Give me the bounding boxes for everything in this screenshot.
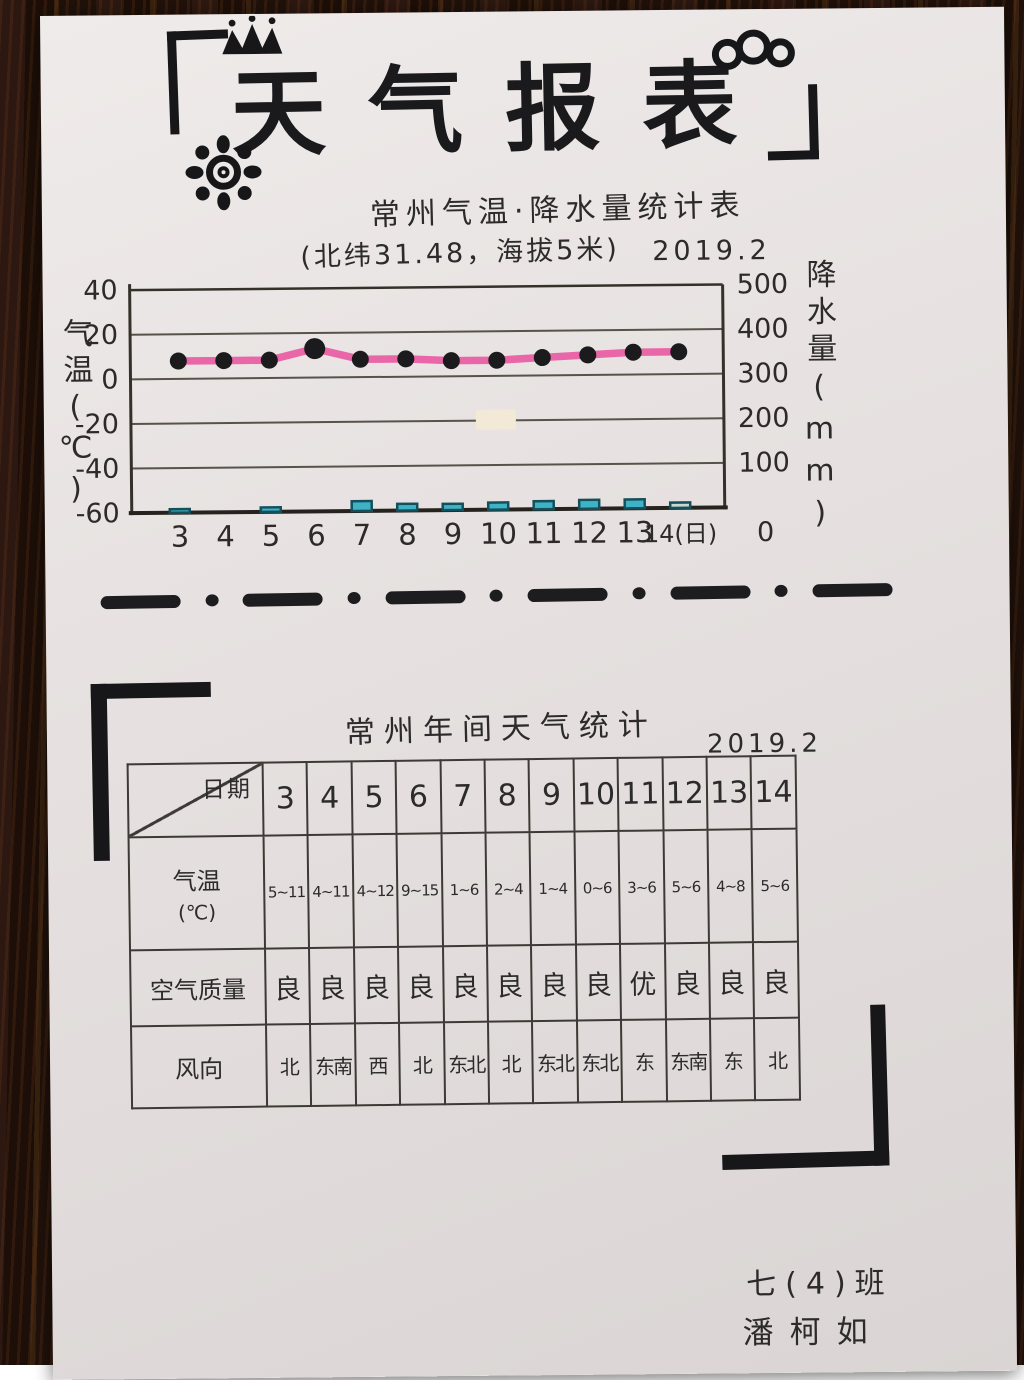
day-header-cell: 12 [662, 757, 707, 831]
row-label: 风向 [131, 1025, 267, 1109]
day-header-cell: 4 [307, 761, 352, 835]
cloud-doodle-icon [706, 23, 806, 74]
row-label-unit: (℃) [130, 900, 263, 926]
day-header-cell: 6 [396, 760, 441, 834]
precipitation-bar [534, 501, 554, 509]
correction-patch [476, 409, 516, 429]
temperature-point [670, 343, 687, 360]
x-tick-label: 11 [525, 516, 562, 550]
air-quality-cell: 良 [265, 948, 310, 1025]
weather-table: 日期34567891011121314气温(℃)5~114~114~129~15… [127, 755, 801, 1110]
precipitation-bar [397, 504, 417, 511]
page-title: 天气报表 [230, 29, 780, 176]
day-header-cell: 14 [751, 756, 796, 830]
left-tick-label: -20 [75, 409, 119, 440]
row-label-text: 风向 [132, 1048, 265, 1085]
temperature-cell: 3~6 [619, 830, 665, 944]
row-label: 气温(℃) [129, 836, 265, 951]
temperature-point [579, 346, 596, 363]
temperature-cell: 5~11 [264, 835, 310, 949]
air-quality-cell: 良 [309, 947, 354, 1024]
divider-dash [243, 592, 323, 606]
temperature-point [170, 352, 187, 369]
wind-direction-cell: 北 [399, 1022, 444, 1105]
day-header-cell: 5 [351, 761, 396, 835]
x-tick-label: 12 [571, 516, 608, 550]
left-axis [130, 284, 132, 515]
x-tick-label: 7 [353, 518, 372, 552]
gridline [131, 418, 724, 424]
desk-background: 天气报表 常州气温·降水量统计表 (北纬31.48，海拔5米) 2019.2 气… [0, 0, 1024, 1365]
sun-doodle-icon [179, 130, 268, 215]
temperature-point [488, 352, 505, 369]
x-tick-label: 9 [444, 517, 463, 551]
table-close-bracket-icon [718, 1004, 889, 1169]
day-header-cell: 10 [573, 758, 618, 832]
air-quality-cell: 良 [487, 945, 532, 1022]
gridline [131, 463, 724, 469]
temperature-cell: 5~6 [752, 829, 798, 943]
divider-dash [670, 585, 750, 599]
air-quality-cell: 良 [354, 947, 399, 1024]
left-tick-label: 0 [101, 364, 118, 395]
wind-direction-cell: 北 [488, 1021, 533, 1104]
temperature-point [443, 352, 460, 369]
temperature-cell: 5~6 [663, 830, 709, 944]
x-tick-label: 10 [480, 516, 517, 550]
x-tick-label: 4 [216, 519, 235, 553]
wind-direction-cell: 东南 [310, 1023, 355, 1106]
day-header-cell: 7 [440, 760, 485, 834]
wind-direction-cell: 东北 [532, 1021, 577, 1104]
temperature-cell: 1~6 [441, 833, 487, 947]
precipitation-bar [670, 502, 690, 508]
wind-direction-cell: 北 [266, 1024, 311, 1107]
gridline [130, 329, 723, 335]
left-tick-label: -40 [75, 454, 119, 485]
temperature-cell: 2~4 [485, 832, 531, 946]
row-label: 空气质量 [130, 949, 266, 1027]
temperature-point [261, 352, 278, 369]
left-tick-label: 20 [84, 320, 119, 351]
right-tick-label: 0 [757, 517, 774, 548]
row-label-text: 空气质量 [131, 969, 264, 1006]
temperature-point [534, 349, 551, 366]
day-header-cell: 13 [706, 756, 751, 830]
divider-dash [101, 594, 181, 608]
precipitation-bar [170, 509, 190, 513]
temperature-cell: 4~11 [308, 834, 354, 948]
temperature-cell: 4~12 [352, 834, 398, 948]
left-tick-label: 40 [83, 275, 118, 306]
top-border [130, 284, 723, 290]
temperature-point [352, 351, 369, 368]
table-title: 常州年间天气统计 [344, 699, 657, 751]
gridline [130, 374, 723, 380]
right-tick-label: 500 [736, 269, 788, 300]
x-tick-label: 3 [171, 520, 190, 554]
paper-sheet: 天气报表 常州气温·降水量统计表 (北纬31.48，海拔5米) 2019.2 气… [40, 7, 1017, 1380]
temperature-point [397, 350, 414, 367]
chart-title: 常州气温·降水量统计表 [369, 180, 746, 234]
signature-name: 潘柯如 [742, 1306, 883, 1352]
corner-label: 日期 [202, 770, 252, 805]
left-tick-label: -60 [76, 498, 120, 529]
temperature-cell: 4~8 [707, 829, 753, 943]
divider-dot [775, 585, 788, 597]
temperature-point [215, 352, 232, 369]
divider-dot [205, 594, 218, 606]
temperature-precipitation-chart: 40200-20-40-6050040030020010003456789101… [72, 261, 815, 590]
signature-class: 七(4)班 [746, 1258, 894, 1303]
precipitation-bar [352, 501, 372, 511]
right-tick-label: 200 [738, 403, 790, 434]
wind-direction-cell: 西 [355, 1023, 400, 1106]
divider-dot [632, 587, 645, 599]
temperature-line [178, 345, 679, 363]
precipitation-bar [261, 507, 281, 512]
wind-direction-cell: 东南 [665, 1019, 710, 1102]
right-tick-label: 300 [737, 358, 789, 389]
temperature-point [304, 338, 325, 359]
day-header-cell: 9 [529, 759, 574, 833]
day-header-cell: 8 [485, 759, 530, 833]
wind-direction-cell: 东 [621, 1019, 666, 1102]
x-tick-label: 5 [262, 519, 281, 553]
divider-dot [490, 590, 503, 602]
temperature-cell: 9~15 [397, 833, 443, 947]
divider-dash [812, 583, 892, 597]
precipitation-bar [579, 500, 599, 509]
day-header-cell: 11 [618, 757, 663, 831]
precipitation-bar [625, 499, 645, 508]
temperature-cell: 0~6 [574, 831, 620, 945]
precipitation-bar [443, 504, 463, 510]
wind-direction-cell: 东北 [444, 1022, 489, 1105]
temperature-cell: 1~4 [530, 832, 576, 946]
row-label-text: 气温 [130, 861, 263, 898]
x-tick-label: 6 [307, 518, 326, 552]
air-quality-cell: 良 [531, 945, 576, 1022]
x-tick-label: 8 [398, 517, 417, 551]
divider-dot [348, 592, 361, 604]
air-quality-cell: 良 [398, 946, 443, 1023]
air-quality-cell: 良 [443, 946, 488, 1023]
day-header-cell: 3 [263, 762, 308, 836]
divider-dash [528, 587, 608, 601]
close-corner-bracket-icon [766, 84, 819, 160]
right-tick-label: 400 [737, 313, 789, 344]
divider-dash [385, 590, 465, 604]
corner-cell: 日期 [128, 763, 264, 838]
x-tick-label: 14(日) [644, 520, 718, 549]
right-tick-label: 100 [738, 447, 790, 478]
temperature-point [625, 344, 642, 361]
precipitation-bar [488, 502, 508, 509]
air-quality-cell: 良 [664, 943, 709, 1020]
right-axis [723, 284, 725, 509]
wind-direction-cell: 东北 [577, 1020, 622, 1103]
air-quality-cell: 良 [576, 944, 621, 1021]
air-quality-cell: 优 [620, 943, 665, 1020]
